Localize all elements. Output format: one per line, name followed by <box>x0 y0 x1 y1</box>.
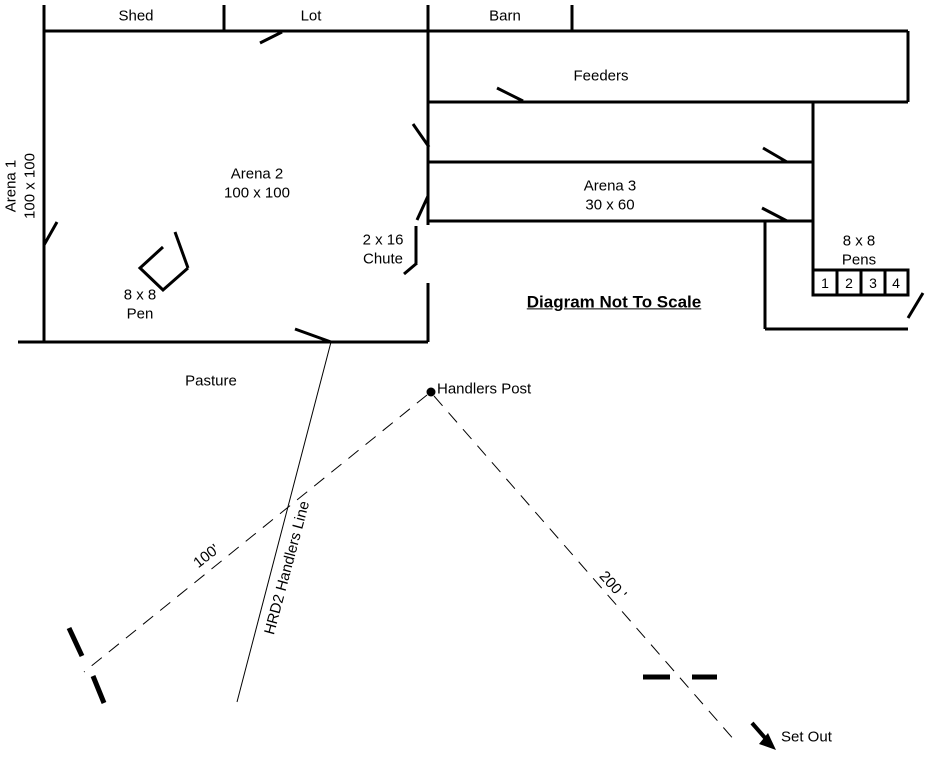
pen-4-number: 4 <box>892 275 900 291</box>
pen-2-number: 2 <box>845 275 853 291</box>
arena2-label: Arena 2 100 x 100 <box>224 165 290 203</box>
dashed-line-200ft <box>434 396 736 742</box>
ranch-trial-diagram: Shed Lot Barn Feeders Arena 1 100 x 100 … <box>0 0 926 761</box>
pen-3-number: 3 <box>869 275 877 291</box>
feeders-gate-mark <box>497 88 523 101</box>
lot-label: Lot <box>301 8 322 27</box>
lot-gate-mark <box>260 32 282 43</box>
alley-gate-mark <box>763 148 787 162</box>
small-pen-drawing <box>140 232 188 290</box>
arena1-label: Arena 1 100 x 100 <box>2 153 40 219</box>
small-pen-label: 8 x 8 Pen <box>124 286 157 324</box>
arena2-bottom-gate-mark <box>295 329 331 342</box>
arena1-name: Arena 1 <box>2 153 21 219</box>
shed-label: Shed <box>118 8 153 27</box>
small-pen-walls <box>140 247 188 290</box>
feeders-label: Feeders <box>573 68 628 87</box>
arena2-name: Arena 2 <box>224 165 290 184</box>
set-out-arrow-shaft <box>752 723 766 739</box>
chute-name: Chute <box>363 250 404 269</box>
small-pen-name: Pen <box>124 305 157 324</box>
pens-corner-gate-mark <box>908 293 923 318</box>
small-pen-gate-mark <box>175 232 188 268</box>
pens-label: 8 x 8 Pens <box>842 232 876 270</box>
pasture-label: Pasture <box>185 373 237 392</box>
barn-label: Barn <box>489 8 521 27</box>
handlers-post-dot <box>427 388 436 397</box>
arena2-size: 100 x 100 <box>224 184 290 203</box>
handlers-line <box>237 342 331 702</box>
pens-size: 8 x 8 <box>842 232 876 251</box>
arena3-gate-mark <box>762 208 787 221</box>
west-gate-post-lower <box>93 676 104 703</box>
arena1-gate-mark <box>44 222 57 245</box>
chute-drawing <box>404 196 428 274</box>
set-out-label: Set Out <box>781 729 832 748</box>
not-to-scale-note: Diagram Not To Scale <box>527 291 701 312</box>
small-pen-size: 8 x 8 <box>124 286 157 305</box>
set-out-arrow <box>752 723 776 750</box>
chute-size: 2 x 16 <box>363 231 404 250</box>
arena3-size: 30 x 60 <box>584 196 637 215</box>
west-gate-post-upper <box>69 628 82 656</box>
pasture-gate-posts <box>69 628 717 703</box>
pen-1-number: 1 <box>821 275 829 291</box>
course-lines <box>84 342 736 742</box>
chute-top-gate-mark <box>417 196 428 220</box>
gate-marks <box>44 32 923 342</box>
chute-label: 2 x 16 Chute <box>363 231 404 269</box>
handlers-post-label: Handlers Post <box>437 381 531 400</box>
pens-name: Pens <box>842 251 876 270</box>
arena1-size: 100 x 100 <box>21 153 40 219</box>
chute-bottom-gate-mark <box>404 263 417 274</box>
arena3-name: Arena 3 <box>584 177 637 196</box>
arena3-label: Arena 3 30 x 60 <box>584 177 637 215</box>
